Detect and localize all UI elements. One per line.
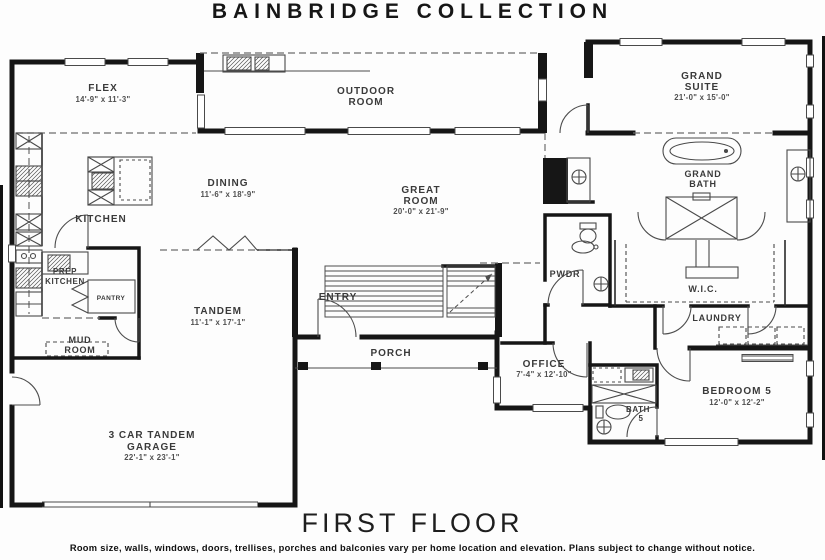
room-label-kitchen: KITCHEN [75,214,126,225]
outdoor-grill [204,55,370,72]
floor-plan-page: BAINBRIDGE COLLECTION [0,0,825,560]
room-label-flex: FLEX [88,83,118,94]
room-dims-dining: 11'-6" x 18'-9" [200,190,255,199]
room-label-porch: PORCH [370,348,411,359]
room-dims-flex: 14'-9" x 11'-3" [75,95,130,104]
floor-plan-drawing: FLEX 14'-9" x 11'-3" OUTDOOR ROOM GRAND … [0,0,825,560]
sink-icon-right-vanity [791,167,805,181]
interior-walls [12,105,810,442]
pwdr-toilet [580,223,596,243]
room-label-wic: W.I.C. [688,284,717,294]
bath5-toilet [596,405,630,419]
room-label-bath5-1: BATH [626,405,650,414]
room-label-grand-suite-2: SUITE [685,82,719,93]
room-label-grand-bath-2: BATH [689,179,717,189]
room-label-great-room-1: GREAT [401,185,440,196]
bath5-counter [593,368,653,382]
dining-door-zigzag [197,236,257,250]
room-label-garage-2: GARAGE [127,442,177,453]
porch-edge [295,362,497,370]
room-label-prep-kitchen-2: KITCHEN [45,277,85,286]
room-dims-garage: 22'-1" x 23'-1" [124,453,179,462]
room-label-office: OFFICE [523,359,566,370]
room-label-garage-1: 3 CAR TANDEM [109,430,196,441]
room-label-grand-bath-1: GRAND [685,169,722,179]
room-label-mud-room-2: ROOM [64,345,95,355]
room-dims-office: 7'-4" x 12'-10" [516,370,571,379]
room-dims-tandem: 11'-1" x 17'-1" [190,318,245,327]
room-label-bedroom5: BEDROOM 5 [702,386,772,397]
wic-island [686,267,738,278]
room-label-pantry: PANTRY [97,295,126,302]
sink-icon-bath5 [597,420,611,434]
garage-door-lines [42,502,258,507]
room-label-pwdr: PWDR [550,269,581,279]
floor-label: FIRST FLOOR [0,508,825,539]
room-dims-grand-suite: 21'-0" x 15'-0" [674,93,729,102]
disclaimer-text: Room size, walls, windows, doors, trelli… [0,543,825,553]
room-label-grand-suite-1: GRAND [681,71,723,82]
room-label-entry: ENTRY [319,292,358,303]
grand-shower [666,193,737,239]
room-label-laundry: LAUNDRY [692,313,741,323]
room-label-dining: DINING [208,178,249,189]
room-label-tandem: TANDEM [194,306,242,317]
room-label-prep-kitchen-1: PREP [53,267,77,276]
room-label-great-room-2: ROOM [403,196,438,207]
room-dims-bedroom5: 12'-0" x 12'-2" [709,398,764,407]
sink-icon-left-vanity [572,170,586,184]
bathtub [663,138,741,164]
room-label-bath5-2: 5 [638,414,643,423]
room-dims-great-room: 20'-0" x 21'-9" [393,207,448,216]
wic-column [696,240,709,267]
room-label-outdoor-2: ROOM [348,97,383,108]
bath5-shower [592,385,656,403]
room-label-outdoor-1: OUTDOOR [337,86,395,97]
thin-walls [42,133,785,316]
room-label-mud-room-1: MUD [69,335,92,345]
sink-icon-pwdr [594,277,608,291]
kitchen-island-fixture [88,157,152,205]
dashed-lines [16,53,775,318]
